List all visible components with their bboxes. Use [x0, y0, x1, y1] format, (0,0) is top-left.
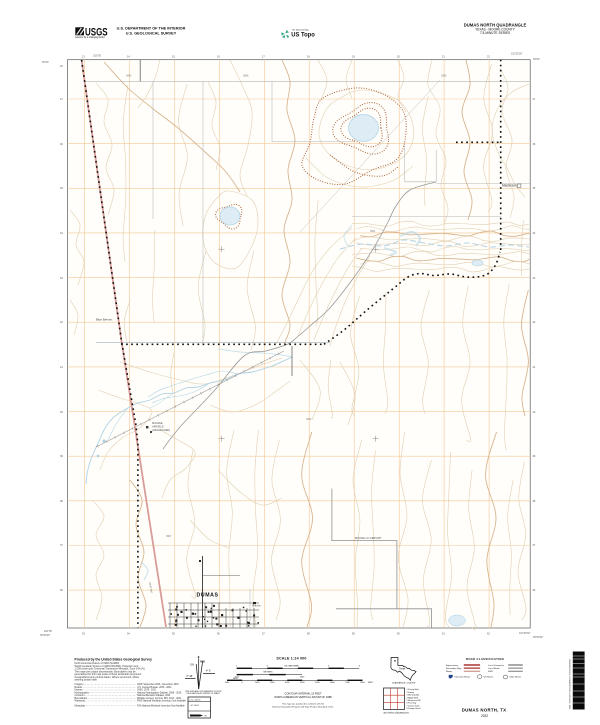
svg-text:Expressway: Expressway [446, 664, 459, 667]
svg-text:Secondary Hwy: Secondary Hwy [446, 667, 462, 670]
svg-text:3501: 3501 [370, 230, 376, 233]
svg-text:DUMAS: DUMAS [197, 593, 219, 599]
svg-text:4WD: 4WD [488, 671, 493, 673]
svg-text:U.S. GEOLOGICAL SURVEY: U.S. GEOLOGICAL SURVEY [126, 31, 177, 35]
svg-text:warning postal mark: warning postal mark [75, 679, 98, 682]
svg-text:National Hydrography Dataset,: National Hydrography Dataset, 2009 - 201… [137, 692, 182, 695]
svg-text:8 Pronger Ranch: 8 Pronger Ranch [407, 707, 421, 710]
svg-text:FSA National Wetlands Inven: FSA National Wetlands Inventory Not Avai… [137, 705, 185, 708]
svg-text:3667: 3667 [166, 535, 172, 538]
svg-text:5 Masterson SW: 5 Masterson SW [407, 699, 421, 702]
svg-text:U.S. DEPARTMENT OF THE INTERIO: U.S. DEPARTMENT OF THE INTERIOR [117, 27, 186, 31]
svg-text:MILE: MILE [233, 678, 238, 680]
svg-text:Peavine: Peavine [252, 605, 261, 608]
svg-text:NSN. 7643014677418 NGA REF N: NSN. 7643014677418 NGA REF NO. USGSX24K8… [569, 658, 572, 709]
svg-text:State Route: State Route [509, 676, 521, 679]
svg-text:METERS: METERS [263, 672, 273, 674]
svg-text:3 Morning Side: 3 Morning Side [407, 694, 420, 697]
svg-text:(ABANDONED): (ABANDONED) [152, 428, 170, 432]
svg-text:GNIS, 1979 - 2021: GNIS, 1979 - 2021 [137, 690, 157, 692]
svg-text:3688: 3688 [243, 75, 249, 78]
svg-text:2 Sunray: 2 Sunray [407, 691, 415, 694]
svg-text:National Elevation Dataset, 20: National Elevation Dataset, 2011 [137, 694, 171, 697]
svg-text:Blue Berven: Blue Berven [96, 318, 113, 322]
svg-text:This map was produced to confo: This map was produced to conform with th… [282, 702, 325, 705]
svg-text:AIRFIELD: AIRFIELD [152, 424, 164, 428]
svg-text:1 cm = 240 m: 1 cm = 240 m [189, 699, 201, 701]
svg-text:0° 28′: 0° 28′ [187, 675, 194, 678]
svg-text:MN: MN [200, 660, 204, 664]
svg-text:CONTOUR INTERVAL 10 FEET: CONTOUR INTERVAL 10 FEET [284, 692, 322, 696]
svg-text:7.5-MINUTE SERIES: 7.5-MINUTE SERIES [480, 31, 510, 35]
svg-text:102°00': 102°00' [93, 55, 102, 58]
svg-text:Masterson: Masterson [502, 184, 517, 188]
svg-text:DUMAS NORTH, TX: DUMAS NORTH, TX [462, 708, 507, 713]
svg-text:Ramp: Ramp [446, 671, 453, 673]
svg-text:3642: 3642 [306, 418, 312, 421]
svg-text:Interstate Route: Interstate Route [455, 676, 471, 679]
svg-text:36°00': 36°00' [533, 58, 540, 61]
svg-text:U.S. Census Bureau, 2015 - 202: U.S. Census Bureau, 2015 - 2021 [137, 686, 172, 689]
svg-text:ROAD CLASSIFICATION: ROAD CLASSIFICATION [466, 657, 504, 661]
svg-text:National Geospatial Program US: National Geospatial Program US Topo Prod… [272, 705, 334, 708]
svg-text:4° 5′: 4° 5′ [206, 670, 211, 673]
svg-text:SC 24000: SC 24000 [191, 705, 199, 707]
svg-text:MOORE CO AIRPORT: MOORE CO AIRPORT [355, 536, 382, 540]
svg-text:US Route: US Route [484, 676, 494, 679]
svg-text:Local Connector: Local Connector [488, 664, 504, 667]
svg-text:4 Middle Well: 4 Middle Well [407, 697, 419, 699]
svg-text:101°52'30'': 101°52'30'' [511, 53, 523, 56]
svg-text:Wetlands: Wetlands [75, 700, 86, 703]
svg-text:Metadata: Metadata [75, 705, 86, 708]
svg-text:2022: 2022 [481, 714, 488, 718]
svg-text:FEET: FEET [368, 682, 374, 684]
svg-text:NAIP, September 2016 - Decembe: NAIP, September 2016 - December 2016 [137, 683, 179, 686]
svg-text:6 Four Way: 6 Four Way [407, 702, 417, 705]
svg-text:35°52'30'': 35°52'30'' [533, 636, 544, 639]
svg-text:NORTH AMERICAN VERTICAL DATUM: NORTH AMERICAN VERTICAL DATUM OF 1988 [274, 695, 332, 699]
svg-text:Texas: Texas [399, 668, 406, 671]
svg-text:QUADRANGLE LOCATION: QUADRANGLE LOCATION [392, 682, 416, 685]
svg-text:Produced by the United States: Produced by the United States Geological… [75, 658, 153, 662]
svg-text:US Topo: US Topo [291, 32, 315, 39]
svg-text:SCALE 1:24 000: SCALE 1:24 000 [276, 657, 306, 661]
svg-text:3693: 3693 [126, 75, 132, 78]
svg-text:35°52'30'': 35°52'30'' [40, 634, 51, 637]
svg-text:102°00': 102°00' [44, 630, 53, 633]
svg-text:101°52'30'': 101°52'30'' [519, 632, 531, 635]
svg-text:3655: 3655 [441, 75, 447, 78]
svg-text:science for a changing world: science for a changing world [75, 36, 105, 39]
svg-text:DECLINATION AT CENTER OF SHEET: DECLINATION AT CENTER OF SHEET [187, 692, 221, 695]
svg-text:1 Sunray West: 1 Sunray West [407, 688, 420, 691]
svg-text:ADJOINING QUADRANGLES: ADJOINING QUADRANGLES [384, 711, 410, 714]
svg-text:Multiple sources; Census, IRS,: Multiple sources; Census, IRS, 2017 - 20… [137, 697, 182, 700]
svg-text:GN: GN [190, 664, 194, 667]
svg-text:FWS National Wetlands Inventor: FWS National Wetlands Inventory, Not Ava… [137, 700, 187, 703]
svg-text:McDADE: McDADE [152, 421, 163, 425]
svg-text:36°00': 36°00' [42, 61, 49, 64]
svg-text:7 Dumas South: 7 Dumas South [407, 704, 420, 707]
svg-text:Local Road: Local Road [488, 668, 500, 670]
